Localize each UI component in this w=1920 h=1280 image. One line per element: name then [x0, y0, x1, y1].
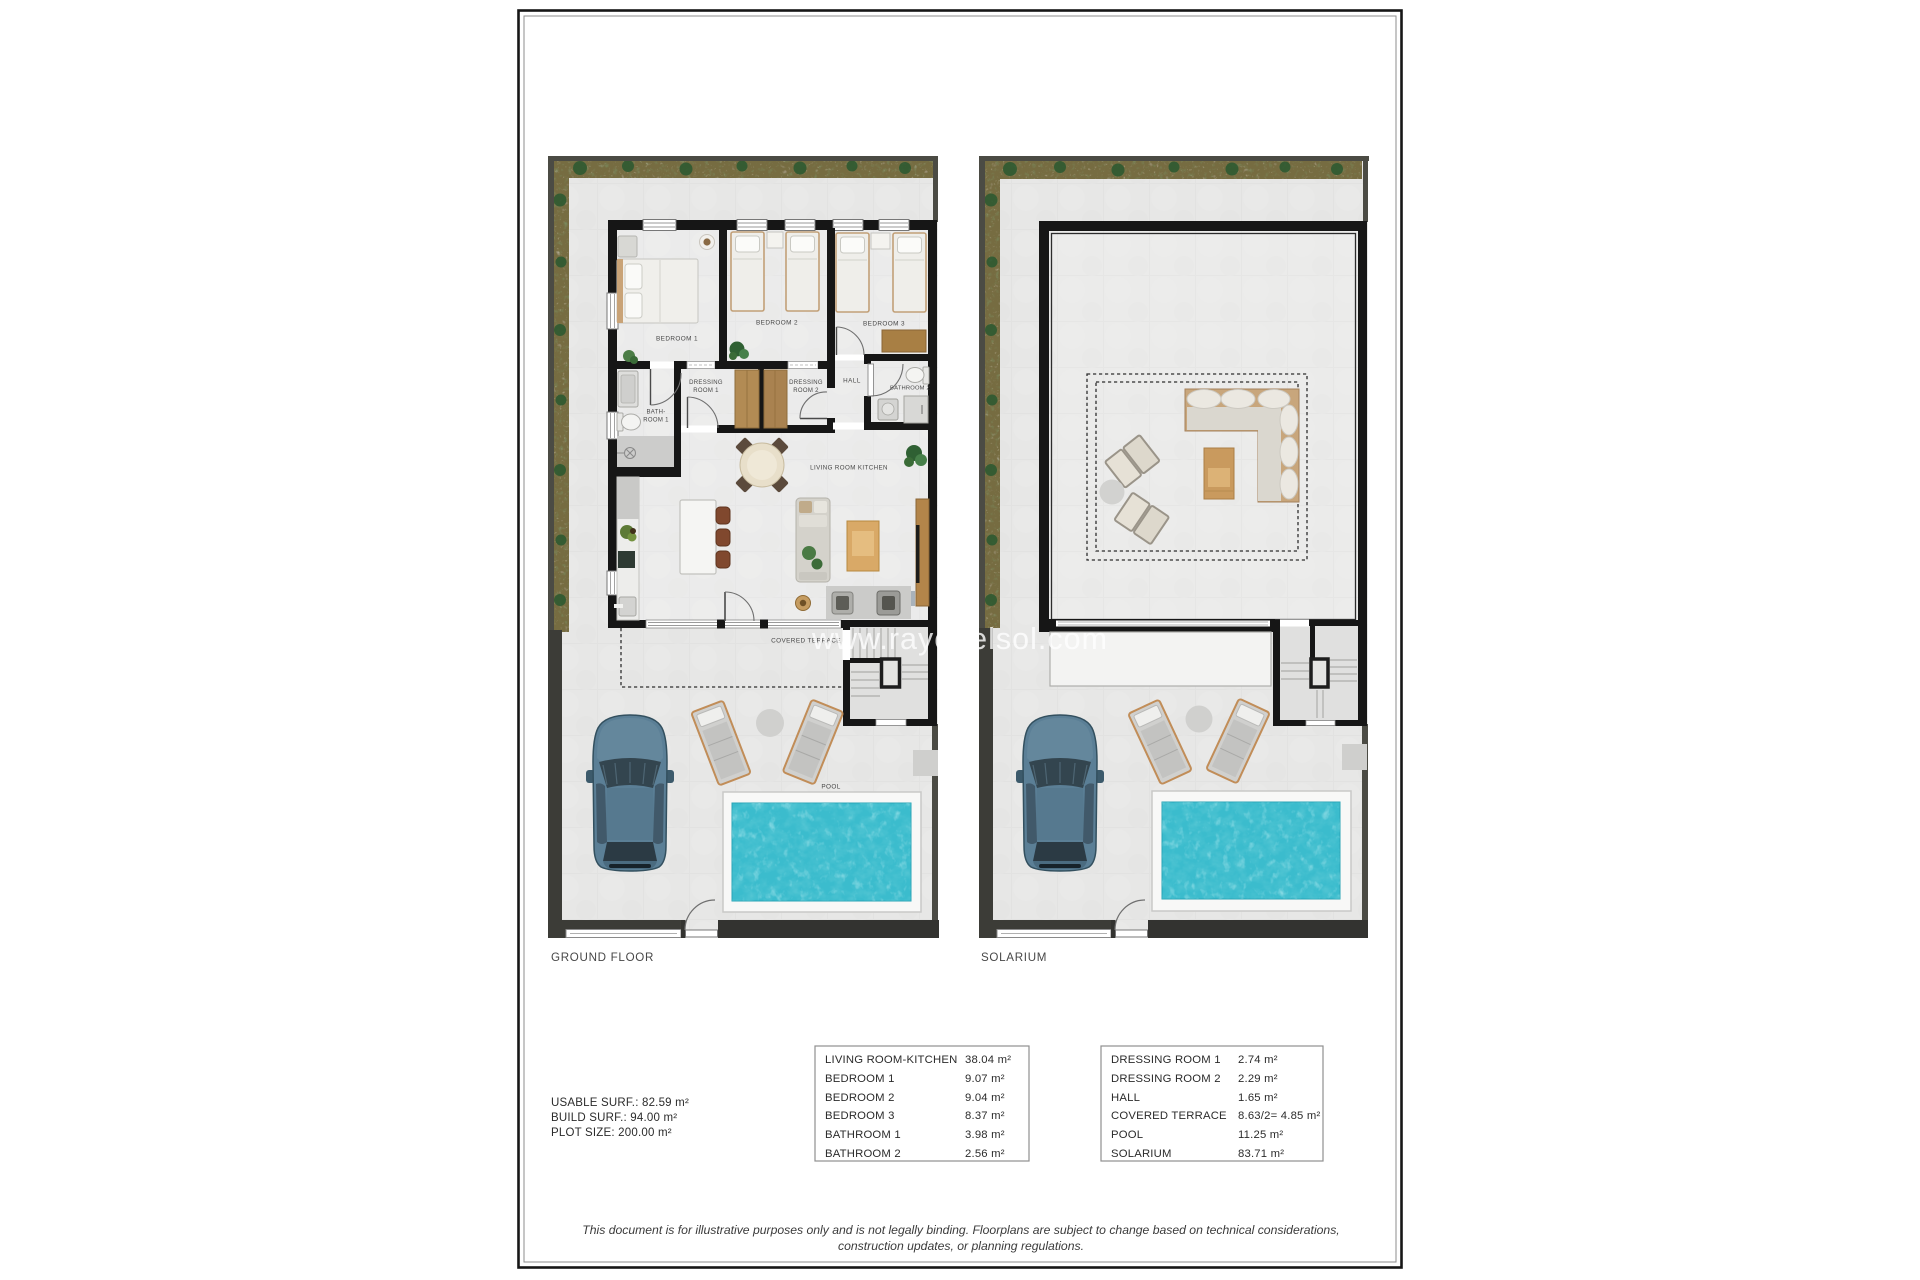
svg-text:DRESSING ROOM 1: DRESSING ROOM 1	[1111, 1054, 1221, 1066]
svg-text:SOLARIUM: SOLARIUM	[1111, 1148, 1172, 1160]
svg-text:ROOM 1: ROOM 1	[693, 388, 719, 394]
svg-text:www.rayodelsol.com: www.rayodelsol.com	[811, 622, 1108, 656]
svg-text:2.29 m²: 2.29 m²	[1238, 1073, 1278, 1085]
svg-text:USABLE SURF.: 82.59 m²: USABLE SURF.: 82.59 m²	[551, 1097, 689, 1109]
svg-text:BATH-: BATH-	[646, 410, 665, 416]
svg-text:9.07 m²: 9.07 m²	[965, 1073, 1005, 1085]
svg-text:DRESSING: DRESSING	[789, 380, 823, 386]
svg-text:BATHROOM 1: BATHROOM 1	[825, 1129, 901, 1141]
svg-text:9.04 m²: 9.04 m²	[965, 1092, 1005, 1104]
svg-text:ROOM 1: ROOM 1	[643, 418, 669, 424]
svg-text:1.65 m²: 1.65 m²	[1238, 1092, 1278, 1104]
svg-text:8.37 m²: 8.37 m²	[965, 1110, 1005, 1122]
svg-text:BATHROOM 2: BATHROOM 2	[825, 1148, 901, 1160]
svg-text:BEDROOM 1: BEDROOM 1	[825, 1073, 895, 1085]
svg-text:38.04 m²: 38.04 m²	[965, 1054, 1011, 1066]
svg-text:HALL: HALL	[1111, 1092, 1140, 1104]
svg-text:BEDROOM 2: BEDROOM 2	[825, 1092, 895, 1104]
svg-text:BEDROOM 2: BEDROOM 2	[756, 320, 798, 327]
svg-text:This document is for illustrat: This document is for illustrative purpos…	[582, 1223, 1339, 1237]
svg-text:GROUND FLOOR: GROUND FLOOR	[551, 951, 654, 964]
svg-text:11.25 m²: 11.25 m²	[1238, 1129, 1283, 1141]
svg-text:BEDROOM 3: BEDROOM 3	[863, 321, 905, 328]
svg-text:POOL: POOL	[821, 784, 840, 791]
svg-text:LIVING ROOM-KITCHEN: LIVING ROOM-KITCHEN	[825, 1054, 957, 1066]
svg-text:BUILD SURF.: 94.00 m²: BUILD SURF.: 94.00 m²	[551, 1112, 677, 1124]
svg-text:2.74 m²: 2.74 m²	[1238, 1054, 1278, 1066]
svg-text:3.98 m²: 3.98 m²	[965, 1129, 1005, 1141]
svg-text:LIVING ROOM KITCHEN: LIVING ROOM KITCHEN	[810, 465, 888, 472]
svg-text:PLOT SIZE: 200.00 m²: PLOT SIZE: 200.00 m²	[551, 1127, 672, 1139]
svg-text:HALL: HALL	[843, 378, 861, 385]
svg-text:POOL: POOL	[1111, 1129, 1143, 1141]
svg-text:BATHROOM 2: BATHROOM 2	[890, 386, 930, 392]
svg-text:BEDROOM 1: BEDROOM 1	[656, 336, 698, 343]
svg-text:2.56 m²: 2.56 m²	[965, 1148, 1005, 1160]
svg-text:83.71 m²: 83.71 m²	[1238, 1148, 1284, 1160]
svg-text:DRESSING ROOM 2: DRESSING ROOM 2	[1111, 1073, 1221, 1085]
svg-text:COVERED TERRACE: COVERED TERRACE	[1111, 1110, 1227, 1122]
svg-text:ROOM 2: ROOM 2	[793, 388, 819, 394]
svg-text:DRESSING: DRESSING	[689, 380, 723, 386]
svg-text:construction updates, or plann: construction updates, or planning regula…	[838, 1239, 1084, 1253]
svg-text:BEDROOM 3: BEDROOM 3	[825, 1110, 895, 1122]
svg-text:8.63/2= 4.85 m²: 8.63/2= 4.85 m²	[1238, 1110, 1320, 1122]
svg-text:SOLARIUM: SOLARIUM	[981, 951, 1047, 964]
